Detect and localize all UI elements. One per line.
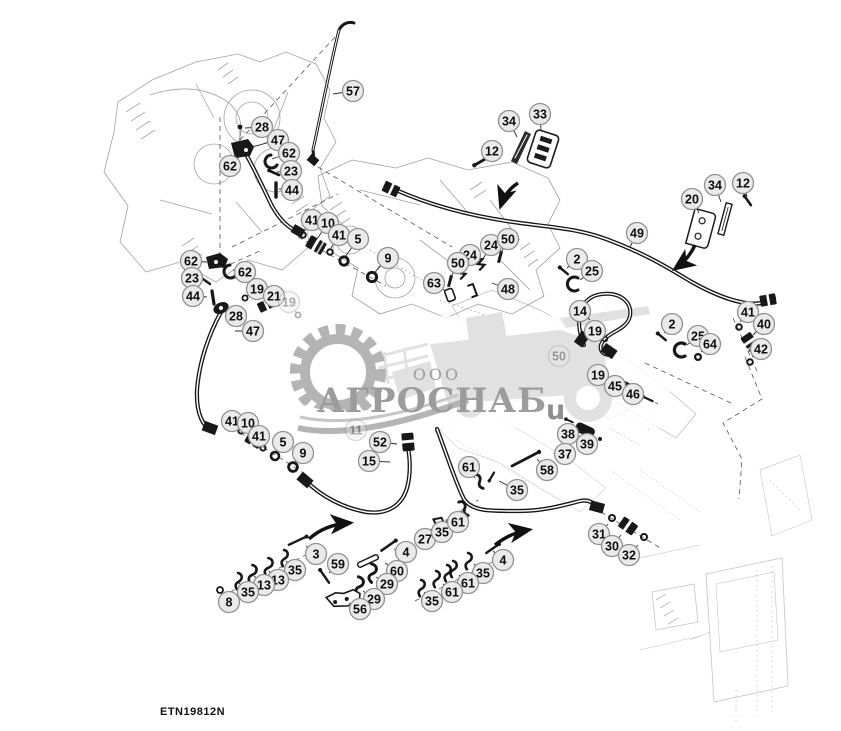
svg-text:9: 9 bbox=[385, 252, 392, 266]
watermark: ООО АГРОСНАБ u bbox=[282, 306, 670, 431]
callout-3: 3 bbox=[306, 544, 327, 565]
svg-text:46: 46 bbox=[626, 388, 640, 402]
svg-text:28: 28 bbox=[255, 121, 269, 135]
hose-left-47 bbox=[197, 312, 221, 431]
callout-42: 42 bbox=[751, 339, 772, 360]
watermark-suffix-text: u bbox=[546, 395, 565, 426]
callout-5: 5 bbox=[273, 432, 294, 453]
callout-15: 15 bbox=[359, 451, 391, 472]
parts-diagram-canvas: ООО АГРОСНАБ u bbox=[0, 0, 841, 731]
parts-diagram-page: ООО АГРОСНАБ u bbox=[0, 0, 841, 731]
callout-46: 46 bbox=[623, 384, 644, 405]
svg-text:50: 50 bbox=[552, 350, 566, 364]
callout-28: 28 bbox=[245, 117, 273, 138]
banjo-eye-2 bbox=[214, 260, 218, 264]
callout-8: 8 bbox=[219, 592, 240, 613]
direction-arrow-1 bbox=[501, 183, 518, 205]
callout-33: 33 bbox=[530, 104, 551, 131]
svg-text:42: 42 bbox=[754, 343, 768, 357]
svg-text:41: 41 bbox=[741, 306, 755, 320]
svg-text:39: 39 bbox=[580, 438, 594, 452]
clamp-62-top bbox=[265, 155, 277, 168]
hose-15 bbox=[306, 448, 410, 513]
svg-text:24: 24 bbox=[484, 239, 498, 253]
callout-63: 63 bbox=[424, 273, 446, 294]
svg-text:11: 11 bbox=[349, 424, 362, 438]
hose-49 bbox=[396, 190, 774, 304]
callout-57: 57 bbox=[333, 81, 364, 102]
callout-34: 34 bbox=[499, 111, 520, 138]
svg-text:41: 41 bbox=[252, 430, 266, 444]
svg-text:2: 2 bbox=[669, 318, 676, 332]
callout-2: 2 bbox=[662, 314, 683, 335]
svg-text:56: 56 bbox=[353, 603, 367, 617]
elbow-fitting-47-top bbox=[231, 139, 254, 158]
hose-49-left-fitting bbox=[381, 180, 401, 198]
callout-14: 14 bbox=[570, 301, 591, 322]
svg-text:61: 61 bbox=[462, 461, 476, 475]
watermark-company-text: АГРОСНАБ bbox=[317, 381, 547, 421]
svg-text:37: 37 bbox=[558, 448, 572, 462]
svg-text:15: 15 bbox=[362, 455, 376, 469]
callout-28: 28 bbox=[226, 306, 247, 327]
svg-text:41: 41 bbox=[225, 415, 239, 429]
svg-text:30: 30 bbox=[605, 540, 619, 554]
svg-text:35: 35 bbox=[510, 484, 524, 498]
banjo-eye bbox=[244, 148, 248, 152]
svg-text:58: 58 bbox=[540, 464, 554, 478]
svg-text:64: 64 bbox=[703, 338, 717, 352]
svg-text:34: 34 bbox=[502, 115, 516, 129]
svg-text:35: 35 bbox=[241, 586, 255, 600]
svg-text:52: 52 bbox=[373, 436, 387, 450]
washer-42 bbox=[747, 359, 753, 365]
washer-19-faint bbox=[295, 312, 300, 317]
svg-text:8: 8 bbox=[226, 596, 233, 610]
callout-41: 41 bbox=[329, 225, 350, 249]
svg-text:12: 12 bbox=[485, 145, 499, 159]
svg-text:40: 40 bbox=[757, 318, 771, 332]
svg-text:19: 19 bbox=[250, 283, 264, 297]
svg-text:61: 61 bbox=[445, 586, 459, 600]
svg-text:4: 4 bbox=[403, 546, 410, 560]
callout-32: 32 bbox=[619, 545, 640, 566]
callout-62: 62 bbox=[220, 156, 241, 177]
svg-text:48: 48 bbox=[501, 283, 515, 297]
callout-19: 19 bbox=[279, 292, 300, 313]
svg-text:34: 34 bbox=[708, 179, 722, 193]
svg-text:35: 35 bbox=[288, 564, 302, 578]
direction-arrow-4 bbox=[495, 530, 528, 545]
svg-text:25: 25 bbox=[585, 265, 599, 279]
svg-text:3: 3 bbox=[313, 548, 320, 562]
svg-text:19: 19 bbox=[588, 325, 602, 339]
bracket-33 bbox=[526, 129, 559, 169]
callout-58: 58 bbox=[537, 459, 558, 481]
svg-text:62: 62 bbox=[238, 266, 252, 280]
callout-61: 61 bbox=[459, 457, 480, 479]
machinery-sketch-bottom-right bbox=[630, 455, 812, 724]
svg-text:20: 20 bbox=[685, 193, 699, 207]
svg-text:45: 45 bbox=[608, 380, 622, 394]
callout-44: 44 bbox=[279, 180, 303, 201]
callout-4: 4 bbox=[394, 542, 417, 563]
callout-61: 61 bbox=[448, 511, 469, 533]
svg-text:47: 47 bbox=[246, 325, 260, 339]
svg-text:19: 19 bbox=[591, 369, 605, 383]
svg-text:61: 61 bbox=[451, 516, 465, 530]
svg-text:35: 35 bbox=[435, 526, 449, 540]
hose-49-right-fitting bbox=[759, 293, 777, 308]
callout-61: 61 bbox=[442, 582, 463, 603]
svg-text:57: 57 bbox=[346, 85, 360, 99]
svg-text:38: 38 bbox=[561, 428, 575, 442]
callout-12: 12 bbox=[482, 141, 503, 162]
svg-text:32: 32 bbox=[622, 549, 636, 563]
svg-text:49: 49 bbox=[630, 227, 644, 241]
svg-text:29: 29 bbox=[380, 578, 394, 592]
callout-19: 19 bbox=[585, 321, 606, 342]
svg-text:5: 5 bbox=[280, 436, 287, 450]
callout-52: 52 bbox=[370, 432, 398, 453]
svg-text:50: 50 bbox=[451, 257, 465, 271]
clamp-25-top bbox=[567, 277, 578, 291]
svg-text:28: 28 bbox=[229, 310, 243, 324]
svg-text:62: 62 bbox=[184, 255, 198, 269]
callout-9: 9 bbox=[293, 443, 314, 464]
tube-57-end-fitting bbox=[307, 154, 320, 167]
callout-4: 4 bbox=[493, 550, 514, 571]
nut-64 bbox=[694, 353, 702, 361]
callout-56: 56 bbox=[349, 599, 371, 620]
svg-text:2: 2 bbox=[574, 253, 581, 267]
svg-text:61: 61 bbox=[461, 577, 475, 591]
clamp-25-right bbox=[674, 343, 685, 357]
svg-text:13: 13 bbox=[257, 579, 271, 593]
svg-text:50: 50 bbox=[501, 233, 515, 247]
bracket-20 bbox=[686, 209, 717, 249]
svg-text:9: 9 bbox=[300, 447, 307, 461]
clamp-29-a bbox=[367, 564, 378, 583]
callout-49: 49 bbox=[627, 223, 648, 248]
callout-12: 12 bbox=[733, 173, 754, 197]
svg-text:63: 63 bbox=[427, 277, 441, 291]
callout-34: 34 bbox=[705, 175, 726, 203]
callout-50: 50 bbox=[549, 346, 570, 367]
svg-text:41: 41 bbox=[332, 229, 346, 243]
svg-text:33: 33 bbox=[533, 108, 547, 122]
svg-text:23: 23 bbox=[185, 272, 199, 286]
callout-50: 50 bbox=[448, 253, 469, 276]
direction-arrow-3 bbox=[309, 523, 349, 539]
callout-39: 39 bbox=[577, 434, 598, 455]
svg-text:44: 44 bbox=[285, 184, 299, 198]
bolt-44-left bbox=[212, 291, 214, 304]
svg-text:5: 5 bbox=[355, 233, 362, 247]
callout-37: 37 bbox=[555, 444, 576, 465]
washer-19-a bbox=[242, 295, 247, 300]
svg-text:27: 27 bbox=[418, 533, 432, 547]
callout-35: 35 bbox=[238, 582, 259, 603]
svg-text:23: 23 bbox=[284, 165, 298, 179]
svg-text:4: 4 bbox=[500, 554, 507, 568]
svg-text:12: 12 bbox=[736, 177, 750, 191]
callout-35: 35 bbox=[499, 480, 528, 501]
fitting-52 bbox=[400, 432, 416, 451]
svg-text:62: 62 bbox=[282, 147, 296, 161]
figure-part-number: ETN19812N bbox=[160, 706, 225, 718]
strap-34-right bbox=[718, 203, 732, 235]
direction-arrow-2 bbox=[676, 245, 695, 268]
callout-41: 41 bbox=[249, 426, 270, 447]
svg-text:35: 35 bbox=[425, 595, 439, 609]
bolt-2-top bbox=[557, 265, 569, 276]
svg-text:59: 59 bbox=[331, 558, 345, 572]
callout-64: 64 bbox=[700, 334, 721, 355]
screw-35-hose bbox=[487, 472, 496, 483]
callout-44: 44 bbox=[183, 286, 208, 307]
washer-41-right bbox=[736, 324, 742, 330]
svg-text:44: 44 bbox=[186, 290, 200, 304]
svg-text:62: 62 bbox=[223, 160, 237, 174]
callout-35: 35 bbox=[422, 591, 443, 612]
bolt-3 bbox=[288, 534, 309, 547]
svg-text:41: 41 bbox=[305, 214, 319, 228]
callout-59: 59 bbox=[328, 554, 349, 575]
callout-38: 38 bbox=[558, 424, 579, 445]
svg-text:14: 14 bbox=[573, 305, 587, 319]
svg-text:19: 19 bbox=[282, 296, 296, 310]
callout-23: 23 bbox=[277, 161, 302, 182]
callout-40: 40 bbox=[753, 314, 775, 336]
callout-11: 11 bbox=[346, 420, 367, 441]
rod-58 bbox=[512, 450, 541, 466]
callout-48: 48 bbox=[492, 279, 519, 300]
